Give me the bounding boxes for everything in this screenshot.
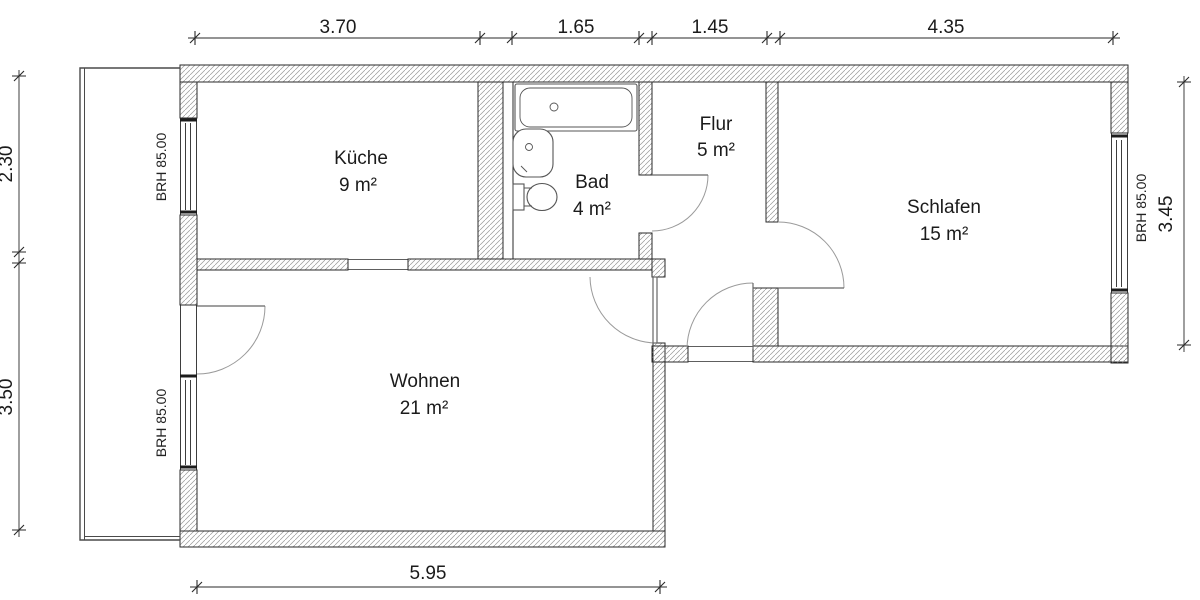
room-label-bad: Bad bbox=[575, 172, 609, 193]
schlafen-door-arc bbox=[778, 222, 844, 288]
wall-flur-south-west bbox=[652, 346, 688, 362]
room-label-flur: Flur bbox=[700, 114, 733, 135]
kueche-passage-lines bbox=[348, 260, 408, 270]
room-area-flur: 5 m² bbox=[697, 140, 735, 161]
wall-left-b bbox=[180, 215, 197, 305]
room-label-kueche: Küche bbox=[334, 148, 388, 169]
wall-wohnen-south bbox=[180, 531, 665, 547]
brh-label-schlafen: BRH 85.00 bbox=[1133, 174, 1149, 243]
room-area-schlafen: 15 m² bbox=[920, 224, 969, 245]
dim-bottom-1: 5.95 bbox=[410, 563, 447, 584]
dim-left-1: 2.30 bbox=[0, 146, 17, 183]
entry-door bbox=[687, 283, 753, 362]
wall-mid-east bbox=[408, 259, 652, 270]
sink-symbol bbox=[513, 129, 553, 177]
room-area-wohnen: 21 m² bbox=[400, 398, 449, 419]
dimension-right: 3.45 bbox=[1156, 76, 1191, 352]
room-label-wohnen: Wohnen bbox=[390, 371, 460, 392]
dimension-bottom: 5.95 bbox=[190, 563, 667, 594]
dim-right-1: 3.45 bbox=[1156, 196, 1177, 233]
wall-top bbox=[180, 65, 1128, 82]
dim-top-4: 4.35 bbox=[928, 17, 965, 38]
wall-mid-west bbox=[197, 259, 348, 270]
entry-door-arc bbox=[687, 283, 753, 349]
floorplan-drawing: 3.70 1.65 1.45 4.35 2.30 3.50 3.45 5.95 … bbox=[0, 0, 1200, 600]
kueche-window bbox=[180, 118, 197, 215]
bathtub-symbol bbox=[515, 84, 637, 131]
balcony-door bbox=[197, 306, 265, 374]
schlafen-window bbox=[1111, 133, 1128, 293]
wall-door-post bbox=[753, 288, 778, 346]
room-area-bad: 4 m² bbox=[573, 199, 611, 220]
dimension-top: 3.70 1.65 1.45 4.35 bbox=[188, 17, 1120, 45]
schlafen-door bbox=[778, 222, 844, 288]
room-area-kueche: 9 m² bbox=[339, 175, 377, 196]
bad-door-arc bbox=[652, 175, 708, 231]
wall-kueche-east bbox=[478, 82, 503, 259]
dimension-left: 2.30 3.50 bbox=[0, 70, 26, 537]
balcony-door-arc bbox=[197, 306, 265, 374]
bad-door bbox=[652, 175, 708, 231]
wall-right-b bbox=[1111, 293, 1128, 363]
wall-south-east bbox=[753, 346, 1128, 362]
wall-left-a bbox=[180, 82, 197, 118]
wall-right-a bbox=[1111, 82, 1128, 133]
dim-top-2: 1.65 bbox=[558, 17, 595, 38]
toilet-symbol bbox=[513, 184, 557, 211]
brh-label-kueche: BRH 85.00 bbox=[153, 133, 169, 202]
wall-wohnen-east bbox=[653, 343, 665, 531]
wall-left-c bbox=[180, 470, 197, 531]
wall-mid-jamb bbox=[652, 259, 665, 277]
wall-schlafen-west-upper bbox=[766, 82, 778, 222]
wohnen-door-leaf bbox=[653, 277, 657, 343]
installation-shaft bbox=[503, 82, 513, 259]
dim-left-2: 3.50 bbox=[0, 379, 17, 416]
wall-bad-east-upper bbox=[639, 82, 652, 175]
brh-label-wohnen: BRH 85.00 bbox=[153, 389, 169, 458]
wohnen-window bbox=[180, 305, 197, 470]
room-label-schlafen: Schlafen bbox=[907, 197, 981, 218]
floorplan-svg: 3.70 1.65 1.45 4.35 2.30 3.50 3.45 5.95 … bbox=[0, 0, 1200, 600]
wohnen-door bbox=[590, 277, 657, 343]
entry-threshold bbox=[688, 347, 753, 362]
dim-top-1: 3.70 bbox=[320, 17, 357, 38]
sill-labels: BRH 85.00 BRH 85.00 BRH 85.00 bbox=[153, 133, 1149, 458]
wall-bad-east-lower bbox=[639, 233, 652, 259]
wohnen-door-arc bbox=[590, 277, 657, 343]
dim-top-3: 1.45 bbox=[692, 17, 729, 38]
